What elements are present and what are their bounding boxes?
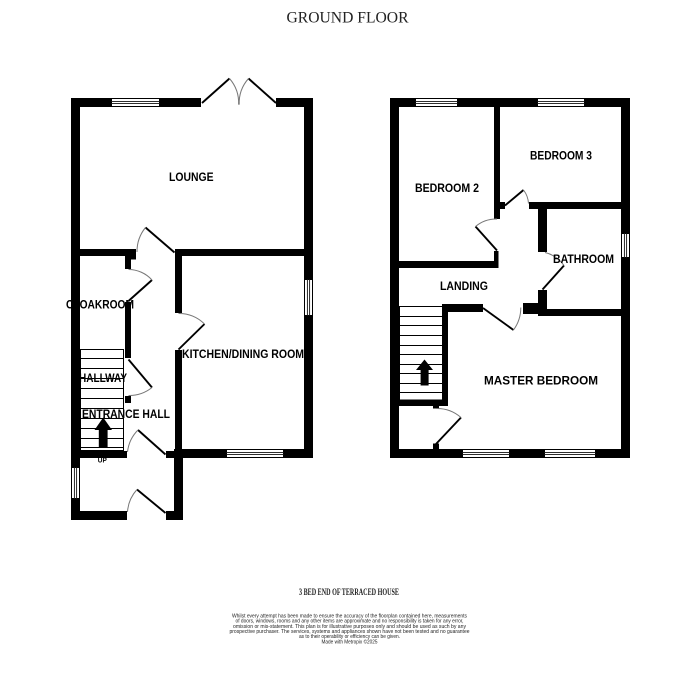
svg-text:BEDROOM 2: BEDROOM 2 — [415, 182, 479, 195]
svg-text:UP: UP — [98, 456, 107, 465]
svg-text:LOUNGE: LOUNGE — [169, 171, 214, 184]
svg-text:3 BED END OF TERRACED HOUSE: 3 BED END OF TERRACED HOUSE — [299, 587, 399, 597]
svg-text:BATHROOM: BATHROOM — [553, 253, 614, 266]
svg-text:CLOAKROOM: CLOAKROOM — [66, 299, 134, 312]
svg-text:KITCHEN/DINING ROOM: KITCHEN/DINING ROOM — [182, 348, 304, 361]
svg-text:GROUND FLOOR: GROUND FLOOR — [287, 10, 410, 27]
svg-text:ENTRANCE HALL: ENTRANCE HALL — [82, 408, 170, 421]
svg-text:HALLWAY: HALLWAY — [79, 372, 127, 385]
svg-text:MASTER BEDROOM: MASTER BEDROOM — [484, 375, 598, 388]
svg-text:LANDING: LANDING — [440, 280, 488, 293]
svg-text:Made with Metropix ©2025: Made with Metropix ©2025 — [322, 638, 378, 645]
svg-text:BEDROOM 3: BEDROOM 3 — [530, 150, 592, 163]
